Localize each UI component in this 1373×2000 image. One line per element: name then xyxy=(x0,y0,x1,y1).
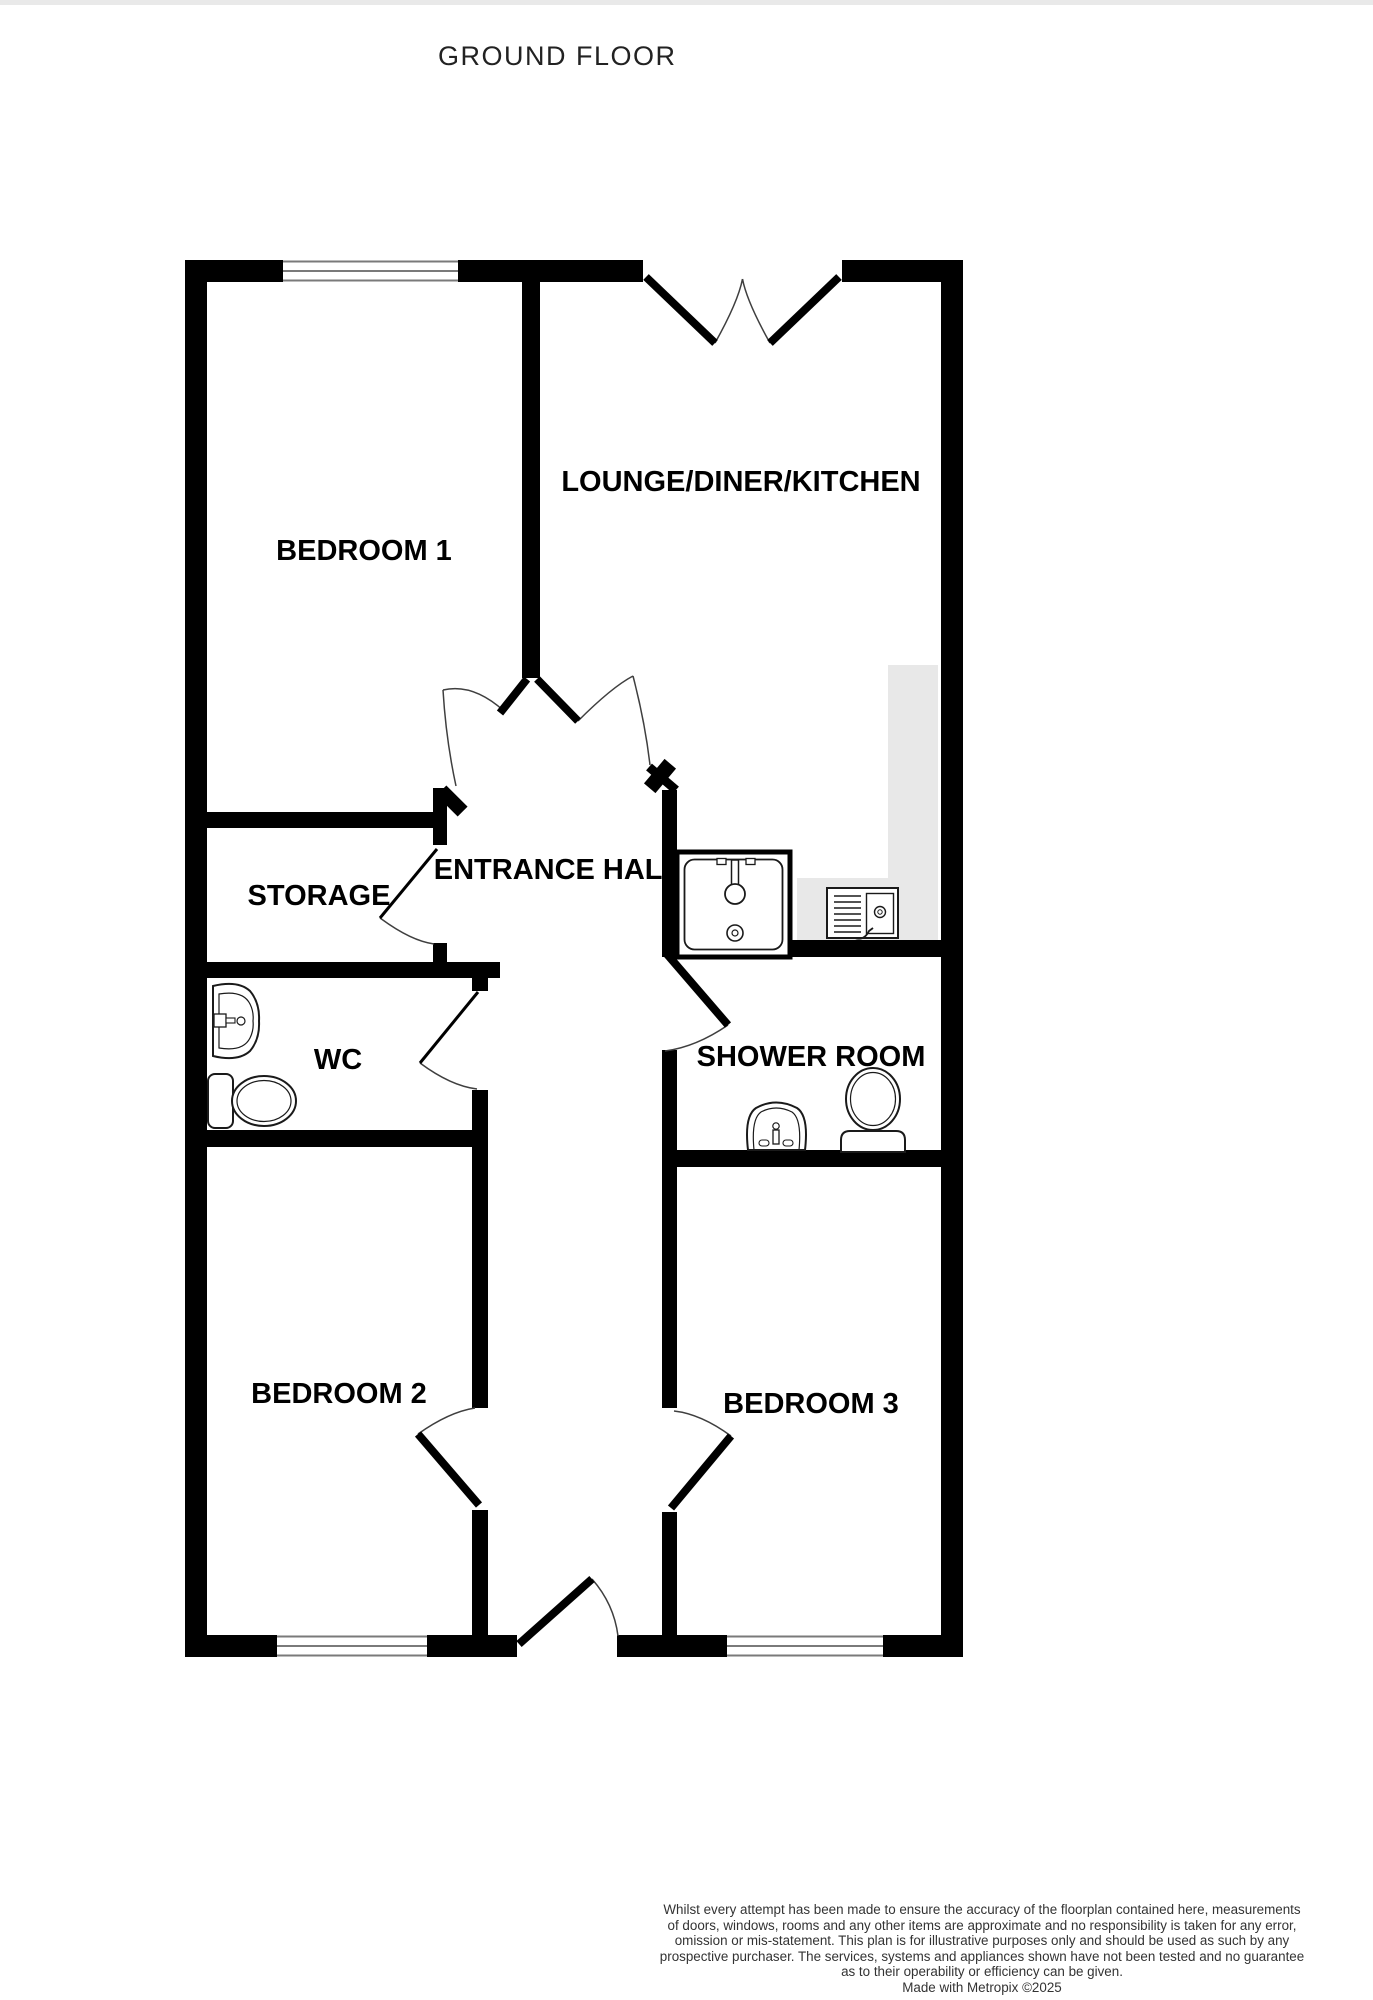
kitchen-sink-part xyxy=(725,884,745,904)
door-leaf xyxy=(770,277,839,343)
wall xyxy=(185,812,447,828)
door-leaf xyxy=(646,277,715,343)
door-swing-arc xyxy=(743,279,771,343)
lounge-door xyxy=(537,676,633,721)
floorplan-page: GROUND FLOOR BEDROOM 1LOUNGE/DINER/KITCH… xyxy=(0,0,1373,2000)
shower-room-basin-part xyxy=(783,1140,793,1146)
shower-room-basin xyxy=(747,1103,806,1151)
room-label-entrance-hall: ENTRANCE HALL xyxy=(434,854,681,886)
room-label-lounge-diner-kitchen: LOUNGE/DINER/KITCHEN xyxy=(561,466,920,498)
door-swing-arc xyxy=(443,690,456,786)
wc-toilet-part xyxy=(232,1076,296,1126)
wall xyxy=(185,260,207,1657)
wall xyxy=(433,943,447,962)
wall xyxy=(472,1510,488,1657)
kitchen-sink-part xyxy=(746,859,755,865)
disclaimer: Whilst every attempt has been made to en… xyxy=(640,1902,1324,1995)
door-leaf xyxy=(418,1434,479,1505)
door-swing-arc xyxy=(420,1063,477,1089)
wall xyxy=(185,1130,488,1147)
door-leaf xyxy=(420,992,478,1063)
door-swing-arc xyxy=(715,279,743,343)
wall xyxy=(472,1090,488,1408)
shower-room-door xyxy=(665,953,728,1051)
door-swing-arc xyxy=(418,1408,475,1434)
bedroom-2-door xyxy=(418,1408,479,1505)
room-label-wc: WC xyxy=(314,1044,362,1076)
room-label-shower-room: SHOWER ROOM xyxy=(697,1041,926,1073)
wall xyxy=(185,1635,277,1657)
wall xyxy=(662,1050,677,1408)
window xyxy=(727,1635,883,1657)
bedroom-1-door-swing xyxy=(443,690,456,786)
bedroom-3-door xyxy=(671,1411,731,1508)
disclaimer-line: omission or mis-statement. This plan is … xyxy=(640,1933,1324,1949)
shower-room-basin-part xyxy=(759,1140,769,1146)
room-label-bedroom-3: BEDROOM 3 xyxy=(723,1388,899,1420)
door-leaf xyxy=(666,953,728,1025)
metropix-credit: Made with Metropix ©2025 xyxy=(640,1980,1324,1996)
door-leaf xyxy=(671,1436,731,1508)
disclaimer-line: of doors, windows, rooms and any other i… xyxy=(640,1918,1324,1934)
kitchen-sink xyxy=(677,852,790,957)
door-swing-arc xyxy=(633,676,650,765)
floorplan-svg: BEDROOM 1LOUNGE/DINER/KITCHENSTORAGEENTR… xyxy=(0,0,1373,2000)
wc-toilet xyxy=(208,1074,296,1128)
kitchen-sink-part xyxy=(732,860,739,885)
door-swing-arc xyxy=(592,1579,618,1636)
window xyxy=(277,1635,427,1657)
door-leaf xyxy=(519,1579,592,1644)
wall xyxy=(662,1150,963,1167)
wc-basin xyxy=(213,984,259,1058)
window xyxy=(283,260,458,282)
door-swing-arc xyxy=(380,918,434,944)
washing-machine-part xyxy=(875,907,886,918)
wall xyxy=(185,260,283,282)
wall xyxy=(842,260,963,282)
wall xyxy=(185,962,500,978)
door-swing-arc xyxy=(443,689,504,711)
wc-toilet-part xyxy=(208,1074,233,1128)
wall xyxy=(662,1512,677,1657)
wall xyxy=(458,260,643,282)
shower-room-toilet-part xyxy=(846,1068,900,1130)
room-label-storage: STORAGE xyxy=(248,880,391,912)
door-swing-arc xyxy=(578,676,633,721)
shower-room-basin-part xyxy=(773,1123,779,1129)
shower-room-toilet xyxy=(841,1068,905,1152)
patio-door-left xyxy=(646,277,743,343)
shower-room-basin-part xyxy=(773,1130,779,1144)
disclaimer-line: Whilst every attempt has been made to en… xyxy=(640,1902,1324,1918)
kitchen-sink-part xyxy=(727,925,743,941)
disclaimer-line: prospective purchaser. The services, sys… xyxy=(640,1949,1324,1965)
washing-machine xyxy=(827,888,898,939)
patio-door-right xyxy=(743,277,840,343)
wall xyxy=(522,282,540,678)
door-leaf xyxy=(537,679,578,721)
wall xyxy=(883,1635,963,1657)
wc-basin-part xyxy=(214,1014,226,1027)
wc-door xyxy=(420,992,478,1089)
disclaimer-line: as to their operability or efficiency ca… xyxy=(640,1964,1324,1980)
wc-basin-part xyxy=(226,1018,235,1023)
wc-basin-part xyxy=(237,1017,245,1025)
wall xyxy=(472,978,488,991)
front-door xyxy=(519,1579,618,1644)
door-leaf xyxy=(500,679,527,713)
bedroom-1-door xyxy=(443,679,527,713)
wall xyxy=(941,260,963,1657)
room-label-bedroom-1: BEDROOM 1 xyxy=(276,535,452,567)
kitchen-sink-part xyxy=(717,859,726,865)
room-label-bedroom-2: BEDROOM 2 xyxy=(251,1378,427,1410)
shower-room-toilet-part xyxy=(841,1131,905,1152)
